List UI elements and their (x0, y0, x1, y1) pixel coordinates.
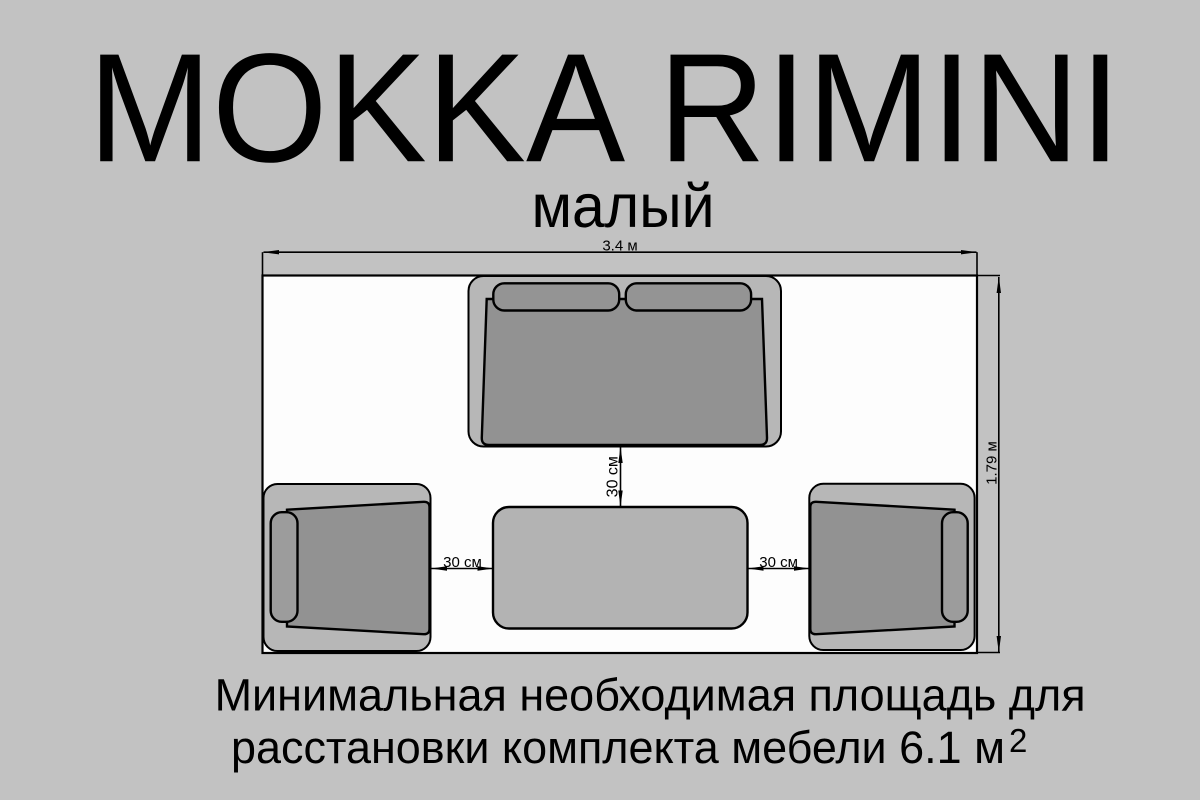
svg-text:2: 2 (1009, 722, 1027, 759)
svg-text:Минимальная необходимая площад: Минимальная необходимая площадь для (215, 670, 1086, 721)
svg-text:малый: малый (532, 172, 715, 241)
svg-text:30 см: 30 см (443, 554, 482, 571)
svg-text:3.4 м: 3.4 м (602, 238, 637, 255)
svg-text:30 см: 30 см (759, 554, 798, 571)
svg-text:MOKKA RIMINI: MOKKA RIMINI (88, 21, 1121, 194)
svg-text:30 см: 30 см (605, 456, 622, 497)
svg-text:1.79 м: 1.79 м (984, 441, 1001, 485)
svg-text:расстановки комплекта мебели 6: расстановки комплекта мебели 6.1 м (231, 722, 1005, 773)
